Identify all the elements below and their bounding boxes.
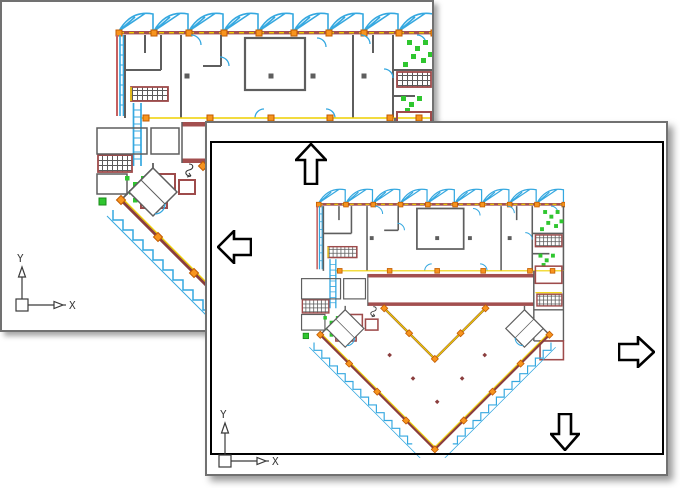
pan-right-arrow-icon[interactable]	[618, 336, 655, 368]
ucs-x-label: X	[272, 455, 279, 468]
pan-up-arrow-icon[interactable]	[295, 143, 327, 185]
ucs-y-label: Y	[220, 408, 227, 421]
pan-down-arrow-icon[interactable]	[550, 413, 580, 451]
ucs-icon: Y X	[211, 406, 279, 472]
pan-left-arrow-icon[interactable]	[217, 230, 252, 264]
screenshot-canvas: Y X Y X	[0, 0, 680, 488]
foreground-drawing-view: Y X	[205, 121, 668, 476]
ucs-x-label: X	[69, 299, 76, 312]
ucs-icon: Y X	[8, 250, 76, 316]
ucs-y-label: Y	[17, 252, 24, 265]
